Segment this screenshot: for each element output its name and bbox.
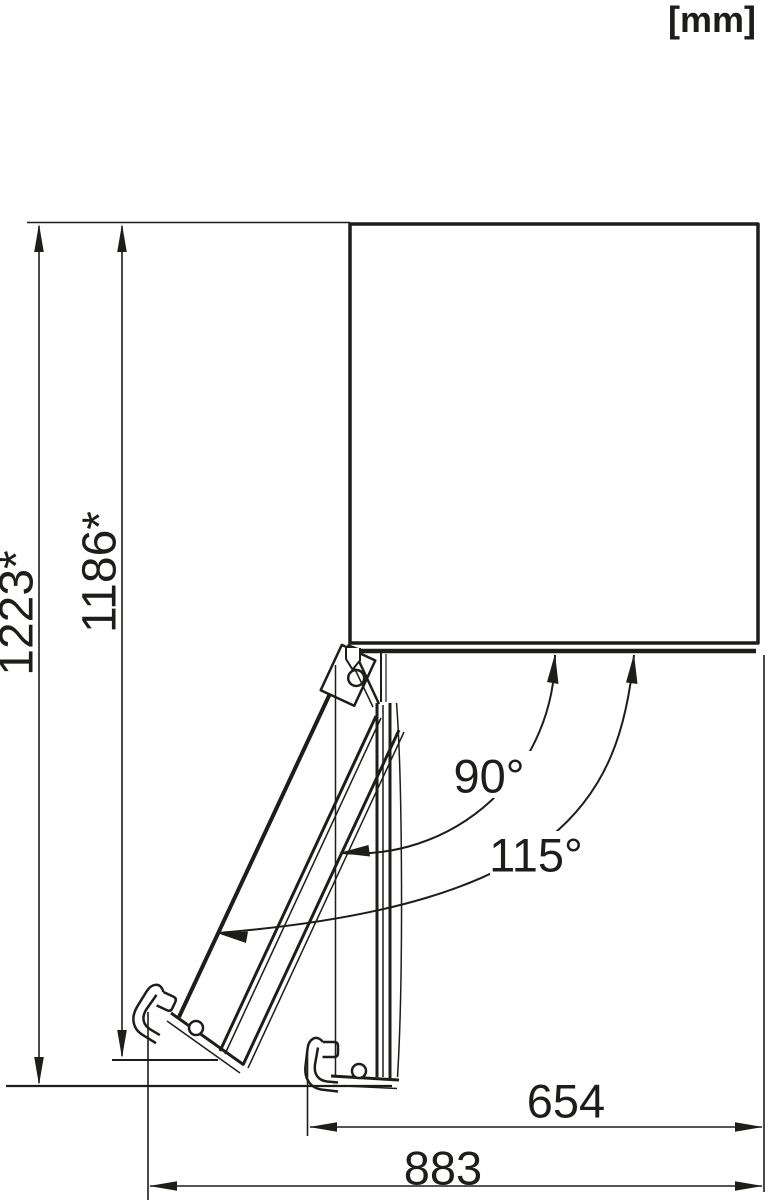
arrow-down-icon xyxy=(117,1030,127,1058)
angle-label-90: 90° xyxy=(453,750,524,803)
angle-label-115: 115° xyxy=(489,829,583,882)
handle-mount xyxy=(352,1064,366,1078)
door-outer-edge xyxy=(179,693,331,1018)
door-inner-edge xyxy=(248,732,404,1068)
arrow-left-icon xyxy=(309,1122,337,1132)
arrow-down-icon xyxy=(34,1057,44,1085)
door-handle-115 xyxy=(126,981,178,1043)
arrow-up-icon xyxy=(117,224,127,252)
unit-label: [mm] xyxy=(668,0,756,40)
door-seam-line xyxy=(225,718,381,1054)
arrow-left-icon xyxy=(217,932,248,944)
dimension-drawing: [mm] 1223* 1186* xyxy=(0,0,769,1200)
dimension-vertical-1186: 1186* xyxy=(74,224,127,1058)
angle-arc xyxy=(218,655,634,933)
dimension-label-1223: 1223* xyxy=(0,550,44,675)
arrow-up-icon xyxy=(547,654,559,684)
arrow-up-icon xyxy=(34,224,44,252)
arrow-left-icon xyxy=(149,1181,177,1191)
cabinet-front-lip xyxy=(347,646,756,651)
arrow-up-icon xyxy=(626,654,638,684)
drawing-canvas: [mm] 1223* 1186* xyxy=(0,0,769,1200)
arrow-right-icon xyxy=(735,1181,763,1191)
appliance-cabinet xyxy=(347,224,758,651)
dimension-label-883: 883 xyxy=(404,1142,482,1195)
dimension-horizontal-654: 654 xyxy=(309,1075,763,1132)
dimension-label-1186: 1186* xyxy=(74,511,127,633)
angle-annotation-90: 90° xyxy=(339,654,559,857)
door-open-115 xyxy=(126,645,404,1073)
door-outer-face xyxy=(397,703,402,1077)
cabinet-outline xyxy=(350,224,758,643)
dimension-horizontal-883: 883 xyxy=(149,1142,763,1195)
dimension-label-654: 654 xyxy=(527,1075,605,1128)
handle-mount xyxy=(189,1021,203,1035)
arrow-right-icon xyxy=(735,1122,763,1132)
dimension-vertical-1223: 1223* xyxy=(0,224,44,1085)
door-handle-90 xyxy=(305,1038,338,1092)
